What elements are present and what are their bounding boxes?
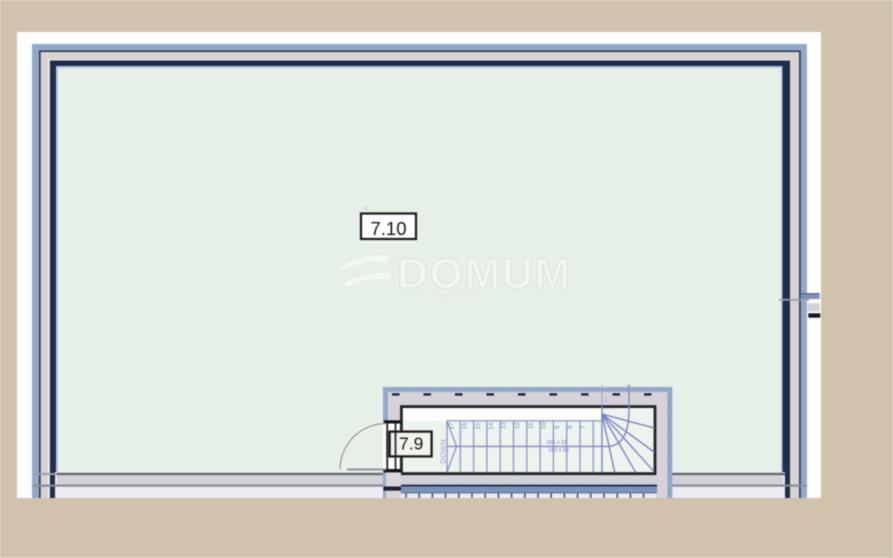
svg-text:185 x 28: 185 x 28 — [546, 440, 567, 446]
svg-text:DOWN: DOWN — [438, 439, 447, 464]
svg-text:11: 11 — [527, 422, 534, 429]
svg-text:15: 15 — [475, 422, 482, 429]
svg-text:14: 14 — [488, 422, 495, 429]
svg-text:10: 10 — [541, 422, 548, 429]
svg-text:8: 8 — [567, 425, 574, 429]
svg-text:16: 16 — [462, 422, 469, 429]
svg-text:17: 17 — [448, 422, 455, 429]
svg-text:7.9: 7.9 — [399, 434, 423, 454]
svg-text:11: 11 — [364, 206, 369, 212]
svg-text:13: 13 — [501, 422, 508, 429]
svg-text:12: 12 — [514, 422, 521, 429]
svg-text:9: 9 — [554, 425, 561, 429]
svg-text:7.10: 7.10 — [370, 218, 406, 239]
svg-text:nekretnine: nekretnine — [420, 291, 477, 300]
svg-text:1: 1 — [605, 398, 608, 404]
svg-text:180 x 85: 180 x 85 — [548, 448, 569, 454]
svg-text:7: 7 — [581, 425, 588, 429]
